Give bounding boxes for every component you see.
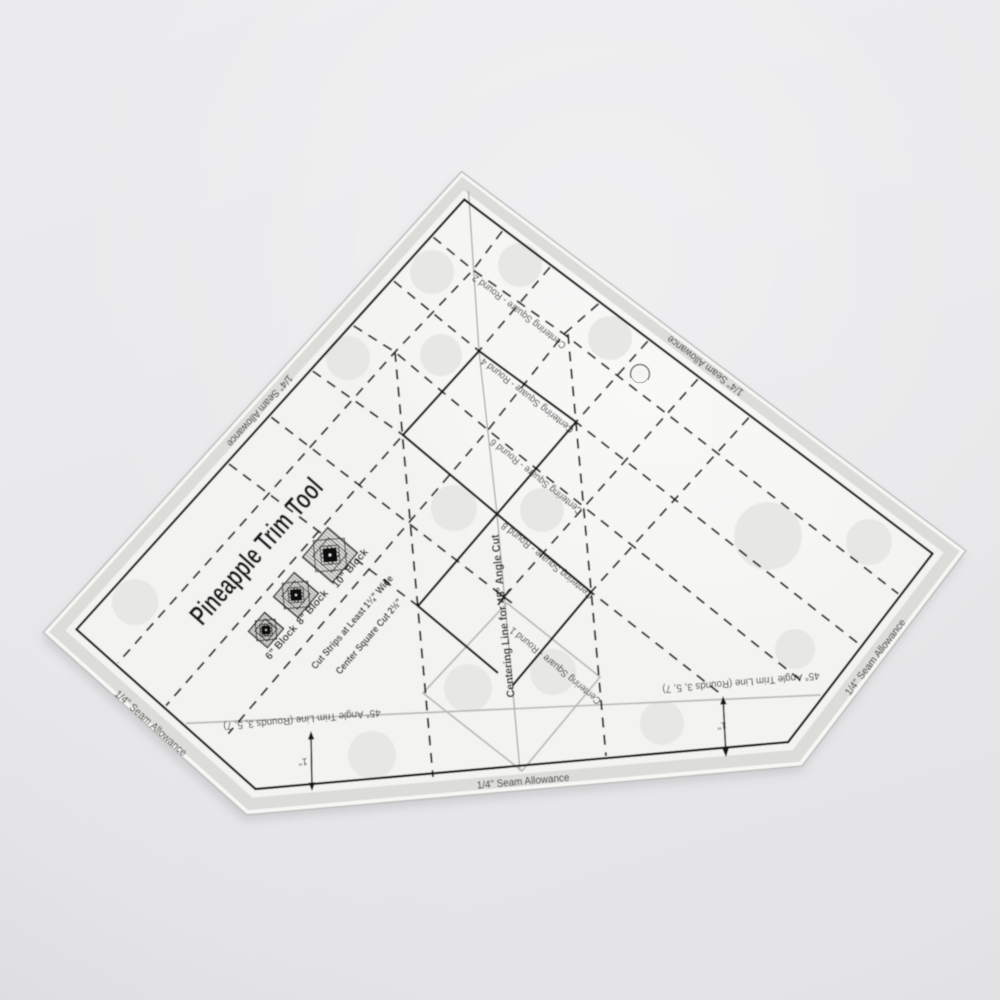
svg-text:1": 1" — [297, 755, 307, 767]
svg-text:1": 1" — [716, 719, 726, 731]
